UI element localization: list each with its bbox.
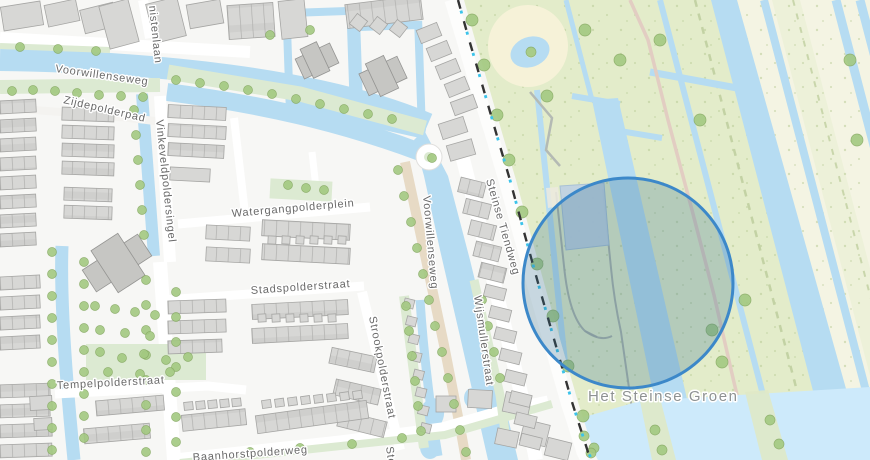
- tree-icon: [121, 329, 130, 338]
- building: [258, 314, 266, 322]
- tree-icon: [650, 425, 660, 435]
- tree-icon: [80, 434, 89, 443]
- tree-icon: [320, 186, 329, 195]
- tree-icon: [48, 446, 57, 455]
- tree-icon: [142, 401, 151, 410]
- tree-icon: [131, 308, 140, 317]
- building: [274, 398, 284, 407]
- tree-icon: [172, 288, 181, 297]
- building: [287, 397, 297, 406]
- tree-icon: [411, 377, 420, 386]
- building: [168, 143, 225, 159]
- selection-overlay[interactable]: [523, 178, 733, 388]
- tree-icon: [428, 154, 437, 163]
- tree-icon: [136, 181, 145, 190]
- tree-icon: [579, 24, 591, 36]
- building: [300, 396, 310, 405]
- tree-icon: [196, 79, 205, 88]
- tree-icon: [16, 43, 25, 52]
- building: [328, 314, 336, 322]
- tree-icon: [172, 413, 181, 422]
- tree-icon: [491, 109, 503, 121]
- tree-icon: [48, 248, 57, 257]
- tree-icon: [172, 313, 181, 322]
- tree-icon: [413, 244, 422, 253]
- building: [310, 236, 318, 244]
- building: [220, 399, 230, 408]
- tree-icon: [466, 14, 478, 26]
- building: [352, 390, 362, 399]
- tree-icon: [425, 296, 434, 305]
- tree-icon: [478, 59, 490, 71]
- tree-icon: [614, 54, 626, 66]
- building: [405, 316, 417, 327]
- building: [62, 143, 114, 158]
- tree-icon: [431, 322, 440, 331]
- tree-icon: [394, 166, 403, 175]
- tree-icon: [462, 448, 471, 457]
- tree-icon: [172, 338, 181, 347]
- tree-icon: [48, 336, 57, 345]
- tree-icon: [162, 356, 171, 365]
- building: [168, 123, 227, 139]
- tree-icon: [172, 76, 181, 85]
- tree-icon: [450, 400, 459, 409]
- tree-icon: [654, 34, 666, 46]
- tree-icon: [80, 280, 89, 289]
- tree-icon: [405, 327, 414, 336]
- tree-icon: [526, 47, 536, 57]
- tree-icon: [139, 93, 148, 102]
- building: [206, 247, 251, 263]
- tree-icon: [80, 412, 89, 421]
- tree-icon: [80, 302, 89, 311]
- building: [206, 225, 251, 241]
- tree-icon: [408, 352, 417, 361]
- tree-icon: [140, 350, 149, 359]
- tree-icon: [80, 324, 89, 333]
- tree-icon: [184, 353, 193, 362]
- tree-icon: [91, 302, 100, 311]
- tree-icon: [417, 427, 426, 436]
- building: [64, 187, 112, 202]
- tree-icon: [80, 390, 89, 399]
- tree-icon: [851, 134, 863, 146]
- building: [338, 236, 346, 244]
- area-label-het-steinse-groen: Het Steinse Groen: [588, 388, 739, 405]
- building: [208, 400, 218, 409]
- tree-icon: [400, 192, 409, 201]
- tree-icon: [142, 276, 151, 285]
- tree-icon: [111, 305, 120, 314]
- tree-icon: [118, 354, 127, 363]
- building: [313, 394, 323, 403]
- map-canvas[interactable]: nistenlaan Voorwillenseweg Zijdepolderpa…: [0, 0, 870, 460]
- tree-icon: [92, 47, 101, 56]
- tree-icon: [496, 374, 505, 383]
- building: [261, 399, 271, 408]
- tree-icon: [657, 445, 667, 455]
- building: [415, 387, 427, 398]
- tree-icon: [8, 87, 17, 96]
- tree-icon: [48, 292, 57, 301]
- tree-icon: [104, 368, 113, 377]
- tree-icon: [765, 415, 775, 425]
- building: [62, 161, 114, 176]
- tree-icon: [142, 448, 151, 457]
- building: [0, 156, 36, 171]
- building: [268, 236, 276, 244]
- tree-icon: [146, 332, 155, 341]
- building: [0, 295, 40, 310]
- building: [326, 393, 336, 402]
- tree-icon: [29, 86, 38, 95]
- tree-icon: [302, 184, 311, 193]
- building: [0, 315, 40, 330]
- building: [196, 401, 206, 410]
- building: [286, 314, 294, 322]
- building: [272, 314, 280, 322]
- building: [468, 389, 493, 408]
- tree-icon: [774, 439, 784, 449]
- tree-icon: [266, 31, 275, 40]
- tree-icon: [172, 438, 181, 447]
- tree-icon: [348, 440, 357, 449]
- tree-icon: [166, 368, 175, 377]
- tree-icon: [364, 110, 373, 119]
- tree-icon: [96, 326, 105, 335]
- building: [168, 104, 227, 120]
- tree-icon: [80, 258, 89, 267]
- tree-icon: [739, 294, 751, 306]
- building: [282, 236, 290, 244]
- tree-icon: [292, 95, 301, 104]
- tree-icon: [48, 314, 57, 323]
- tree-icon: [284, 181, 293, 190]
- tree-icon: [117, 92, 126, 101]
- tree-icon: [577, 410, 589, 422]
- map-svg[interactable]: nistenlaan Voorwillenseweg Zijdepolderpa…: [0, 0, 870, 460]
- building: [0, 335, 40, 350]
- tree-icon: [340, 105, 349, 114]
- building: [314, 314, 322, 322]
- tree-icon: [151, 311, 160, 320]
- tree-icon: [844, 54, 856, 66]
- tree-icon: [95, 91, 104, 100]
- tree-icon: [80, 346, 89, 355]
- street-label-bottom-partial: Ste: [383, 446, 398, 460]
- building: [62, 125, 114, 140]
- tree-icon: [48, 402, 57, 411]
- tree-icon: [398, 434, 407, 443]
- tree-icon: [140, 231, 149, 240]
- building: [170, 167, 211, 182]
- tree-icon: [438, 348, 447, 357]
- tree-icon: [456, 426, 465, 435]
- tree-icon: [220, 82, 229, 91]
- tree-icon: [51, 87, 60, 96]
- tree-icon: [268, 90, 277, 99]
- building: [232, 398, 242, 407]
- tree-icon: [134, 156, 143, 165]
- building: [64, 205, 112, 220]
- building: [168, 299, 226, 314]
- building: [0, 137, 36, 152]
- tree-icon: [142, 426, 151, 435]
- tree-icon: [172, 388, 181, 397]
- tree-icon: [142, 301, 151, 310]
- selection-circle[interactable]: [523, 178, 733, 388]
- tree-icon: [132, 131, 141, 140]
- building: [0, 443, 52, 458]
- building: [0, 213, 36, 228]
- tree-icon: [244, 86, 253, 95]
- tree-icon: [48, 358, 57, 367]
- tree-icon: [388, 115, 397, 124]
- tree-icon: [694, 114, 706, 126]
- building: [0, 118, 36, 133]
- tree-icon: [54, 45, 63, 54]
- tree-icon: [407, 218, 416, 227]
- building: [296, 236, 304, 244]
- tree-icon: [96, 348, 105, 357]
- building: [0, 99, 36, 114]
- building: [184, 402, 194, 411]
- tree-icon: [414, 402, 423, 411]
- building: [300, 314, 308, 322]
- tree-icon: [48, 424, 57, 433]
- building: [0, 232, 36, 247]
- building: [324, 236, 332, 244]
- building: [0, 175, 36, 190]
- tree-icon: [306, 26, 315, 35]
- building: [278, 0, 308, 39]
- building: [0, 194, 36, 209]
- tree-icon: [444, 374, 453, 383]
- tree-icon: [316, 100, 325, 109]
- tree-icon: [419, 270, 428, 279]
- tree-icon: [48, 380, 57, 389]
- tree-icon: [48, 270, 57, 279]
- building: [339, 392, 349, 401]
- tree-icon: [138, 206, 147, 215]
- tree-icon: [716, 356, 728, 368]
- tree-icon: [402, 302, 411, 311]
- building: [0, 275, 40, 290]
- tree-icon: [541, 90, 553, 102]
- tree-icon: [80, 368, 89, 377]
